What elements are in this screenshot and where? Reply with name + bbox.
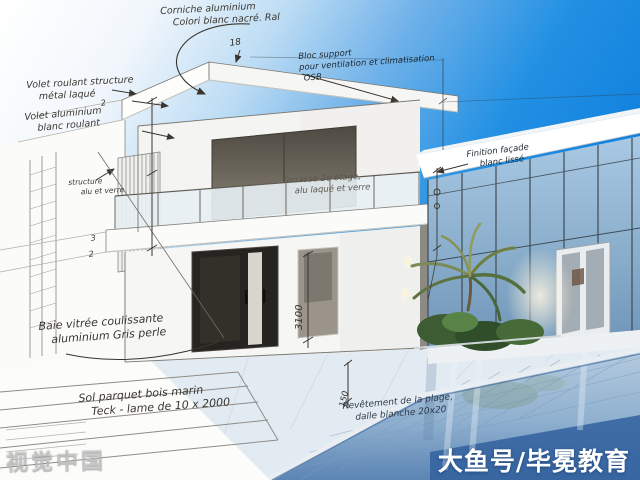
watermark-dayuhao: 大鱼号/毕冕教育 — [438, 442, 630, 478]
architectural-concept-photo: Corniche aluminium Colori blanc nacré. R… — [0, 0, 640, 480]
dimension-tick-b: 3 — [90, 233, 96, 243]
annotation-terrasse: Terrasse 2e étage, alu laqué et verre — [282, 171, 371, 198]
annotation-brise: structure alu et verre — [68, 175, 125, 197]
dimension-floor-height: 3100 — [294, 305, 305, 330]
dimension-tick-c: 2 — [88, 249, 94, 259]
watermark-visual-china: 视觉中国 — [6, 443, 107, 477]
dimension-roof-offset: 18 — [229, 37, 242, 48]
